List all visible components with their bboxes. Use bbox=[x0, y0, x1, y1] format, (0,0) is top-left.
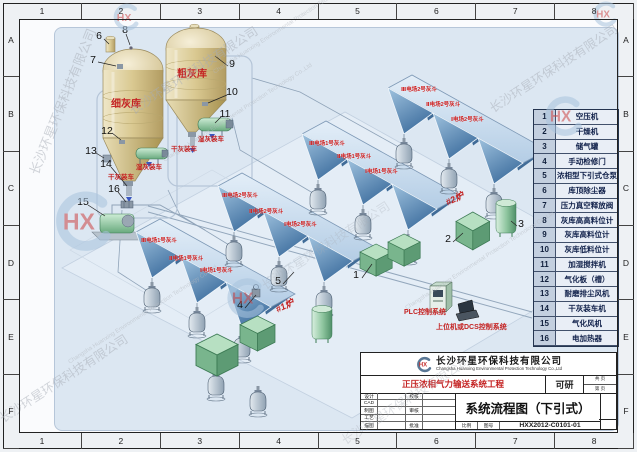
zone-number: 6 bbox=[397, 3, 476, 19]
legend-item-number: 3 bbox=[534, 140, 556, 154]
legend-row: 1 空压机 bbox=[534, 110, 618, 125]
legend-item-number: 7 bbox=[534, 199, 556, 213]
legend-item-name: 库顶除尘器 bbox=[556, 184, 618, 198]
legend-item-name: 气化风机 bbox=[556, 317, 618, 331]
zone-number: 2 bbox=[82, 3, 161, 19]
equipment-legend-table: 1 空压机 2 干燥机 3 储气罐 4 手动检修门 5 浓相型下引式仓泵 bbox=[533, 109, 619, 347]
pages-total: 共 页 bbox=[584, 375, 616, 385]
esp-hopper-label: Ⅰ电场1号灰斗 bbox=[365, 167, 398, 175]
drawing-number: HXX2012-C0101-01 bbox=[500, 422, 600, 429]
zone-number: 3 bbox=[161, 3, 240, 19]
zone-number: 6 bbox=[397, 433, 476, 449]
zone-letter: C bbox=[618, 152, 634, 226]
callout-number: 16 bbox=[108, 183, 120, 195]
equipment-label: 上位机或DCS控制系统 bbox=[436, 322, 507, 332]
callout-number: 15 bbox=[77, 196, 89, 208]
legend-row: 3 储气罐 bbox=[534, 140, 618, 155]
legend-item-name: 干燥机 bbox=[556, 125, 618, 139]
legend-item-number: 10 bbox=[534, 243, 556, 257]
legend-item-name: 储气罐 bbox=[556, 140, 618, 154]
signature-fields: 设计 校核 CAD 制图 审核 工艺 bbox=[361, 393, 456, 429]
legend-row: 5 浓相型下引式仓泵 bbox=[534, 169, 618, 184]
legend-item-number: 5 bbox=[534, 169, 556, 183]
esp-hopper-label: Ⅱ电场2号灰斗 bbox=[249, 207, 283, 215]
esp-hopper-label: Ⅰ电场2号灰斗 bbox=[451, 115, 484, 123]
legend-item-number: 4 bbox=[534, 154, 556, 168]
legend-row: 4 手动检修门 bbox=[534, 154, 618, 169]
callout-number: 3 bbox=[518, 218, 524, 230]
legend-row: 12 气化板（槽） bbox=[534, 272, 618, 287]
field-draft: 制图 bbox=[361, 407, 378, 413]
esp-hopper-label: Ⅲ电场1号灰斗 bbox=[309, 139, 345, 147]
legend-row: 16 电加热器 bbox=[534, 331, 618, 346]
legend-row: 9 灰库高料位计 bbox=[534, 228, 618, 243]
callout-number: 4 bbox=[237, 299, 243, 311]
callout-number: 7 bbox=[90, 54, 96, 66]
legend-item-number: 2 bbox=[534, 125, 556, 139]
legend-item-number: 13 bbox=[534, 287, 556, 301]
zone-letter: D bbox=[618, 226, 634, 300]
zone-number: 7 bbox=[476, 3, 555, 19]
field-cad: CAD bbox=[361, 400, 378, 406]
zone-letter: F bbox=[618, 375, 634, 449]
zone-number: 2 bbox=[82, 433, 161, 449]
field-design: 设计 bbox=[361, 393, 378, 399]
legend-item-number: 14 bbox=[534, 302, 556, 316]
equipment-label: 干灰装车 bbox=[171, 143, 197, 153]
callout-number: 13 bbox=[85, 145, 97, 157]
zone-letter: A bbox=[3, 3, 19, 77]
legend-item-name: 灰库高高料位计 bbox=[556, 213, 618, 227]
callout-number: 5 bbox=[275, 275, 281, 287]
zone-number: 7 bbox=[476, 433, 555, 449]
legend-row: 11 加湿搅拌机 bbox=[534, 258, 618, 273]
legend-item-name: 耐磨排尘风机 bbox=[556, 287, 618, 301]
equipment-label: 干灰装车 bbox=[108, 171, 134, 181]
title-block-right-column bbox=[599, 393, 616, 429]
field-trace: 描图 bbox=[361, 422, 378, 429]
legend-item-number: 15 bbox=[534, 317, 556, 331]
legend-item-number: 6 bbox=[534, 184, 556, 198]
equipment-label: 湿灰装车 bbox=[136, 161, 162, 171]
zone-number: 4 bbox=[240, 433, 319, 449]
callout-number: 11 bbox=[220, 108, 231, 120]
field-review: 审核 bbox=[406, 407, 423, 413]
zone-number: 5 bbox=[319, 3, 398, 19]
title-block-company-band: HX 长沙环星环保科技有限公司 Changsha Huanxing Enviro… bbox=[361, 353, 616, 376]
legend-item-name: 手动检修门 bbox=[556, 154, 618, 168]
legend-item-name: 加湿搅拌机 bbox=[556, 258, 618, 272]
esp-hopper-label: Ⅰ电场2号灰斗 bbox=[284, 220, 317, 228]
zone-letter: B bbox=[3, 77, 19, 151]
company-logo-text: HX bbox=[419, 362, 427, 368]
legend-item-number: 12 bbox=[534, 272, 556, 286]
legend-item-name: 干灰装车机 bbox=[556, 302, 618, 316]
zone-letter: B bbox=[618, 77, 634, 151]
legend-row: 7 压力真空释放阀 bbox=[534, 199, 618, 214]
esp-hopper-label: Ⅱ电场2号灰斗 bbox=[426, 100, 460, 108]
callout-number: 9 bbox=[229, 58, 235, 70]
field-approve: 批准 bbox=[406, 422, 423, 429]
scale-label: 比例 bbox=[456, 422, 478, 429]
legend-row: 14 干灰装车机 bbox=[534, 302, 618, 317]
field-process: 工艺 bbox=[361, 415, 378, 421]
equipment-label: 湿灰装车 bbox=[198, 133, 224, 143]
zone-strip-right: A B C D E F bbox=[618, 3, 634, 449]
company-logo-icon: HX bbox=[415, 356, 432, 373]
zone-number: 5 bbox=[319, 433, 398, 449]
equipment-label: 粗灰库 bbox=[177, 65, 207, 80]
drawing-number-row: 比例 图号 HXX2012-C0101-01 bbox=[456, 421, 601, 429]
page-number: 第 页 bbox=[584, 385, 616, 394]
zone-number: 4 bbox=[240, 3, 319, 19]
legend-item-name: 浓相型下引式仓泵 bbox=[556, 169, 618, 183]
zone-letter: C bbox=[3, 152, 19, 226]
legend-item-name: 灰库高料位计 bbox=[556, 228, 618, 242]
esp-hopper-label: Ⅲ电场1号灰斗 bbox=[141, 236, 177, 244]
zone-strip-left: A B C D E F bbox=[3, 3, 19, 449]
drawing-title: 系统流程图（下引式） bbox=[456, 393, 601, 421]
callout-number: 10 bbox=[226, 86, 238, 98]
zone-letter: F bbox=[3, 375, 19, 449]
legend-row: 13 耐磨排尘风机 bbox=[534, 287, 618, 302]
esp-hopper-label: Ⅰ电场1号灰斗 bbox=[200, 266, 233, 274]
legend-item-name: 空压机 bbox=[556, 110, 618, 124]
esp-hopper-label: Ⅲ电场2号灰斗 bbox=[401, 85, 437, 93]
esp-hopper-label: Ⅱ电场1号灰斗 bbox=[337, 152, 371, 160]
pages-cells: 共 页 第 页 bbox=[584, 375, 616, 393]
design-stage: 可研 bbox=[546, 375, 584, 393]
title-block-project-band: 正压浓相气力输送系统工程 可研 共 页 第 页 bbox=[361, 375, 616, 394]
zone-letter: E bbox=[3, 300, 19, 374]
equipment-label: 细灰库 bbox=[111, 95, 141, 110]
legend-row: 2 干燥机 bbox=[534, 125, 618, 140]
project-name: 正压浓相气力输送系统工程 bbox=[361, 375, 546, 393]
drawing-no-label: 图号 bbox=[478, 422, 500, 429]
field-check: 校核 bbox=[406, 393, 423, 399]
legend-item-name: 电加热器 bbox=[556, 331, 618, 345]
callout-number: 8 bbox=[122, 24, 128, 36]
legend-item-number: 9 bbox=[534, 228, 556, 242]
title-block: HX 长沙环星环保科技有限公司 Changsha Huanxing Enviro… bbox=[360, 352, 617, 430]
zone-letter: D bbox=[3, 226, 19, 300]
drawing-sheet: 1 2 3 4 5 6 7 8 9 10 11 12 13 14 15 16 细… bbox=[0, 0, 637, 452]
legend-row: 6 库顶除尘器 bbox=[534, 184, 618, 199]
zone-number: 3 bbox=[161, 433, 240, 449]
callout-number: 6 bbox=[96, 30, 102, 42]
zone-strip-bottom: 1 2 3 4 5 6 7 8 bbox=[3, 433, 634, 449]
legend-row: 10 灰库低料位计 bbox=[534, 243, 618, 258]
esp-hopper-label: Ⅱ电场1号灰斗 bbox=[169, 254, 203, 262]
legend-item-number: 1 bbox=[534, 110, 556, 124]
callout-number: 14 bbox=[100, 158, 112, 170]
legend-item-number: 8 bbox=[534, 213, 556, 227]
callout-number: 12 bbox=[101, 125, 113, 137]
zone-letter: A bbox=[618, 3, 634, 77]
legend-item-name: 气化板（槽） bbox=[556, 272, 618, 286]
legend-item-number: 11 bbox=[534, 258, 556, 272]
legend-item-number: 16 bbox=[534, 331, 556, 345]
legend-row: 15 气化风机 bbox=[534, 317, 618, 332]
esp-hopper-label: Ⅲ电场2号灰斗 bbox=[222, 191, 258, 199]
company-name-en: Changsha Huanxing Environmental Protecti… bbox=[436, 367, 562, 372]
legend-row: 8 灰库高高料位计 bbox=[534, 213, 618, 228]
equipment-label: PLC控制系统 bbox=[404, 307, 446, 317]
legend-item-name: 压力真空释放阀 bbox=[556, 199, 618, 213]
callout-number: 2 bbox=[445, 233, 451, 245]
zone-letter: E bbox=[618, 300, 634, 374]
callout-number: 1 bbox=[353, 269, 359, 281]
zone-strip-top: 1 2 3 4 5 6 7 8 bbox=[3, 3, 634, 19]
legend-item-name: 灰库低料位计 bbox=[556, 243, 618, 257]
